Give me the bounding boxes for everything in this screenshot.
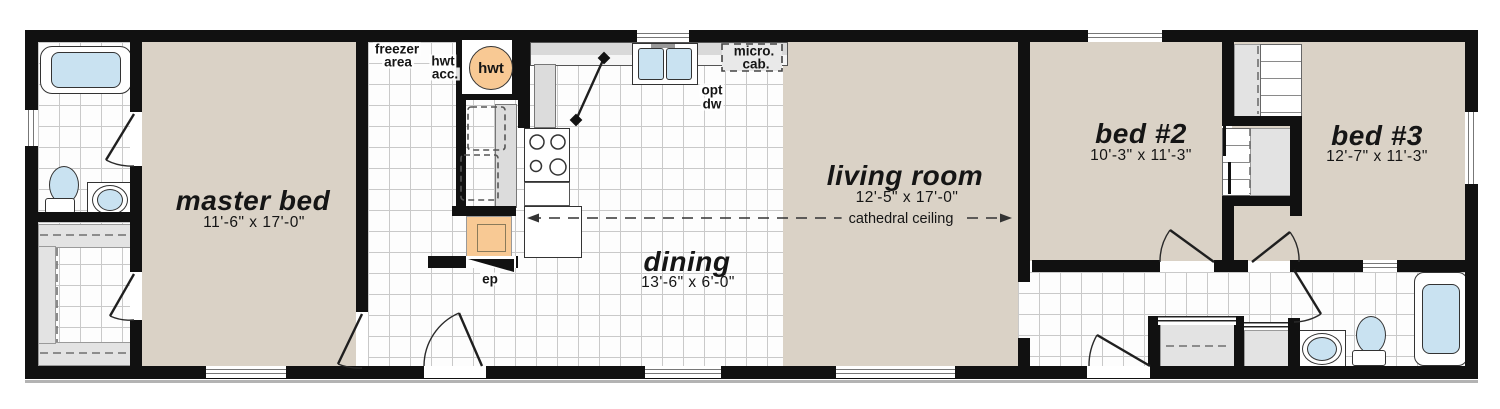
- room-label-living: living room: [827, 160, 983, 192]
- micro-cab-label-2: cab.: [740, 58, 771, 71]
- opt-dw-label-2: dw: [701, 98, 724, 111]
- bath2-tub-basin: [1422, 284, 1460, 354]
- bed3-closet-shelves: [1260, 44, 1302, 118]
- bath2-toilet-bowl: [1356, 316, 1386, 354]
- door-gap-master-closet: [130, 272, 142, 320]
- wall-outer-left: [25, 30, 38, 379]
- closet-shelf-left: [38, 246, 56, 344]
- hall-closet-b-slider: [1244, 322, 1288, 330]
- wall-bed23-bottom-mid: [1214, 260, 1248, 272]
- wall-utility-vertical: [456, 100, 466, 206]
- electrical-panel-inner: [477, 224, 506, 252]
- sink-faucet: [651, 44, 675, 48]
- wall-living-bed2: [1018, 42, 1030, 282]
- refrigerator: [524, 206, 582, 258]
- bed2-closet-slider-jamb1: [1223, 126, 1226, 156]
- opt-dw-label-1: opt: [700, 84, 725, 97]
- room-dims-master: 11'-6" x 17'-0": [203, 214, 305, 232]
- closet-shelf-top: [38, 224, 132, 248]
- wall-bed3-bottom-1: [1290, 260, 1363, 272]
- kitchen-counter-left: [534, 64, 556, 128]
- stove-counter: [524, 182, 570, 206]
- window-bed3-right: [1465, 112, 1478, 184]
- wall-bed2-lower: [1222, 206, 1234, 260]
- utility-counter: [495, 104, 517, 208]
- wall-outer-right: [1465, 30, 1478, 379]
- window-kitchen-top: [637, 30, 689, 42]
- bed2-closet-shelves: [1222, 128, 1252, 196]
- window-master-bottom: [206, 366, 286, 378]
- wall-closet-master-upper: [130, 222, 142, 272]
- hwt-acc-label-2: acc.: [430, 68, 460, 81]
- wall-bed3-bottom-2: [1397, 260, 1465, 272]
- door-gap-hall: [1087, 366, 1150, 378]
- wall-kitchen-left: [518, 36, 530, 128]
- plan-shadow: [25, 380, 1478, 383]
- bed3-closet-gray: [1234, 44, 1262, 118]
- hwt-tank: hwt: [469, 46, 513, 90]
- door-gap-master-bed: [356, 312, 368, 366]
- ep-door-notch: [466, 256, 516, 268]
- stove: [524, 128, 570, 182]
- bath2-sink-bowl: [1307, 337, 1337, 361]
- wall-bath-closet-divider: [38, 212, 142, 222]
- hall-closet-a: [1160, 324, 1236, 368]
- wall-living-bed2-stub: [1018, 338, 1030, 366]
- wall-bath2-left: [1288, 318, 1300, 366]
- cathedral-ceiling-note: cathedral ceiling: [842, 211, 961, 227]
- closet-shelf-bottom: [38, 342, 132, 366]
- sink-bowl: [97, 189, 123, 211]
- wall-bath-master-upper: [130, 42, 142, 112]
- window-bed2-top: [1088, 30, 1162, 42]
- bathtub-basin: [51, 52, 121, 88]
- hall-closet-a-slider: [1158, 316, 1236, 325]
- hall-closet-b: [1244, 330, 1290, 368]
- wall-outer-top: [25, 30, 1478, 42]
- room-dims-dining: 13'-6" x 6'-0": [641, 274, 735, 292]
- room-label-bed2: bed #2: [1095, 118, 1187, 150]
- room-label-master: master bed: [176, 185, 330, 217]
- wall-closet-bottom: [1222, 196, 1302, 206]
- wall-utility-h1: [452, 206, 516, 216]
- room-dims-bed2: 10'-3" x 11'-3": [1090, 147, 1192, 165]
- ep-label: ep: [480, 273, 500, 286]
- bed2-closet-gray: [1250, 128, 1292, 196]
- bath2-toilet-tank: [1352, 350, 1386, 366]
- wall-closet-master-lower: [130, 320, 142, 366]
- window-living-bottom: [836, 366, 955, 378]
- wall-bed2-closet-upper: [1222, 36, 1234, 122]
- freezer-area-label-2: area: [382, 56, 414, 69]
- room-dims-bed3: 12'-7" x 11'-3": [1326, 148, 1428, 166]
- hwt-tank-label: hwt: [478, 60, 504, 77]
- bed2-closet-slider-jamb2: [1228, 162, 1231, 194]
- window-bath2-wall: [1363, 260, 1397, 272]
- window-master-bath: [25, 110, 38, 146]
- door-gap-master-bath: [130, 112, 142, 166]
- window-dining-bottom: [645, 366, 721, 378]
- door-gap-dining: [424, 366, 486, 378]
- wall-bath-master-lower: [130, 166, 142, 212]
- sink-basin-left: [638, 48, 664, 80]
- room-dims-living: 12'-5" x 17'-0": [856, 189, 959, 207]
- floor-plan: hwt: [0, 0, 1500, 409]
- sink-basin-right: [666, 48, 692, 80]
- wall-bed2-bottom: [1032, 260, 1160, 272]
- wall-master-right: [356, 42, 368, 312]
